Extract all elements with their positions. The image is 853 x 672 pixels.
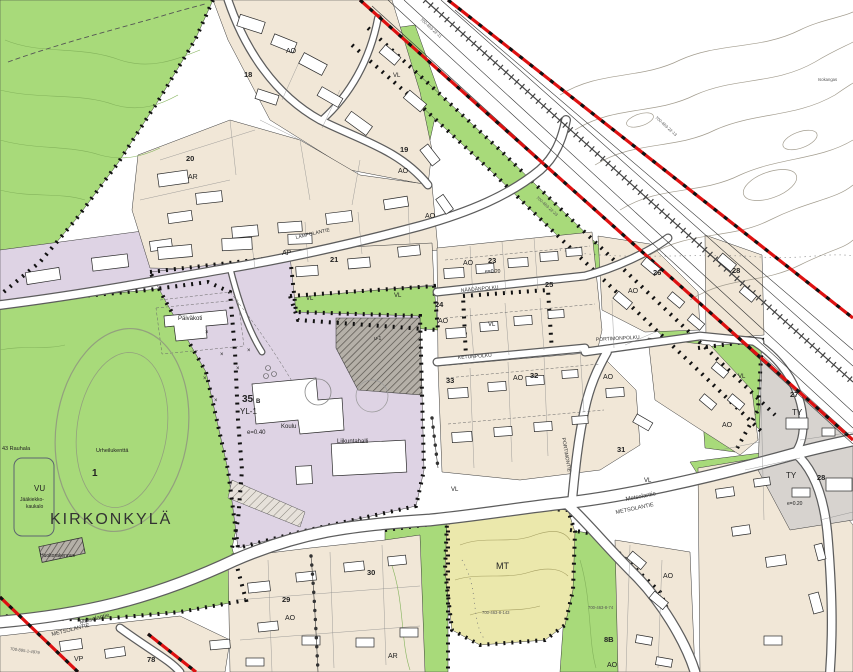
block-number-35: 35 xyxy=(242,394,254,405)
zone-label-ao: AO xyxy=(722,422,733,429)
place-koulu: Koulu xyxy=(281,424,296,430)
zone-label-ao: AO xyxy=(628,288,639,295)
block-number: 32 xyxy=(530,371,538,380)
building-liikuntahalli xyxy=(331,440,407,476)
zoning-map-canvas[interactable]: ××× ××× KIRKONKYLÄ VU 1 Urheilukenttä Jä… xyxy=(0,0,853,672)
block-number: 26 xyxy=(653,268,661,277)
zone-agriculture-mt xyxy=(445,508,575,645)
zone-label-ao: AO xyxy=(513,375,524,382)
svg-text:×: × xyxy=(205,330,209,336)
block-number: 78 xyxy=(147,655,155,664)
zone-label-ao: AO xyxy=(425,213,436,220)
block-number-1: 1 xyxy=(92,468,98,479)
svg-text:×: × xyxy=(214,398,218,404)
zone-label-mt: MT xyxy=(496,561,509,571)
block-number: 18 xyxy=(244,70,252,79)
zone-label-u1: u-1 xyxy=(374,336,381,342)
density-e020: e=0.20 xyxy=(485,269,501,275)
zone-label-vl: VL xyxy=(488,322,496,328)
block-number: 28 xyxy=(732,266,740,275)
street-metsolantie-caps: METSOLANTIE xyxy=(615,502,655,516)
zone-label-vl: VL xyxy=(738,374,746,380)
zone-label-vp: VP xyxy=(74,656,84,663)
zone-label-vl: VL xyxy=(394,293,402,299)
zone-label-ty: TY xyxy=(792,408,803,417)
block-number: 24 xyxy=(435,300,444,309)
block-number: 8B xyxy=(604,635,614,644)
block-number: 23 xyxy=(488,256,496,265)
zone-label-ao: AO xyxy=(603,374,614,381)
block-number: 19 xyxy=(400,145,408,154)
place-rauhala: 43 Rauhala xyxy=(2,446,31,452)
place-jaakiekko-line1: Jääkiekko- xyxy=(20,497,44,503)
block-number: 21 xyxy=(330,255,338,264)
parcel-id: 700-463-8-143 xyxy=(482,610,510,615)
zone-label-ty: TY xyxy=(786,471,797,480)
region-title: KIRKONKYLÄ xyxy=(50,510,172,528)
place-jaakiekko-line2: kaukalo xyxy=(26,504,43,510)
zone-label-vl: VL xyxy=(393,73,401,79)
svg-text:×: × xyxy=(247,348,251,354)
zone-label-yl1: YL-1 xyxy=(240,407,257,416)
svg-text:×: × xyxy=(203,376,207,382)
zone-label-ao: AO xyxy=(607,662,618,669)
density-e040: e=0.40 xyxy=(247,430,266,436)
zone-label-ar: AR xyxy=(388,653,398,660)
parcel-id: 700-463-22-11 xyxy=(419,17,443,39)
zone-label-vl: VL xyxy=(451,487,459,493)
block-number: 20 xyxy=(186,154,194,163)
parcel-id: 700-463-22-13 xyxy=(654,115,678,138)
zone-label-ao: AO xyxy=(285,615,296,622)
zone-label-ao: AO xyxy=(438,318,449,325)
zone-blocks-ne xyxy=(705,235,764,340)
place-isokangas: Isokangas xyxy=(818,77,837,82)
block-number: 30 xyxy=(367,568,375,577)
zone-label-ap: AP xyxy=(282,250,292,257)
block-number: 31 xyxy=(617,445,625,454)
block-number-35-sub: B xyxy=(256,399,261,405)
zone-label-vl: VL xyxy=(306,296,314,302)
block-number: 25 xyxy=(545,280,553,289)
block-number: 27 xyxy=(790,390,798,399)
zone-label-ao: AO xyxy=(663,573,674,580)
svg-text:×: × xyxy=(236,366,240,372)
zone-label-vu: VU xyxy=(34,484,45,493)
zone-label-ar: AR xyxy=(188,174,198,181)
parcel-id: 700-463-8-74 xyxy=(588,605,614,610)
place-liikuntahalli: Liikuntahalli xyxy=(337,439,368,445)
block-number: 29 xyxy=(282,595,290,604)
place-paivakoti: Päiväkoti xyxy=(178,316,202,322)
place-urheilukentta: Urheilukenttä xyxy=(96,448,129,454)
zone-label-ao: AO xyxy=(286,48,297,55)
block-number: 33 xyxy=(446,376,454,385)
zone-label-ao: AO xyxy=(398,168,409,175)
density-e020: e=0.20 xyxy=(787,501,803,507)
zone-label-vl: VL xyxy=(644,478,652,484)
zone-label-ao: AO xyxy=(463,260,474,267)
svg-text:×: × xyxy=(220,352,224,358)
block-number: 28 xyxy=(817,473,825,482)
place-huoltorakennus: Huoltorakennus xyxy=(40,553,76,559)
